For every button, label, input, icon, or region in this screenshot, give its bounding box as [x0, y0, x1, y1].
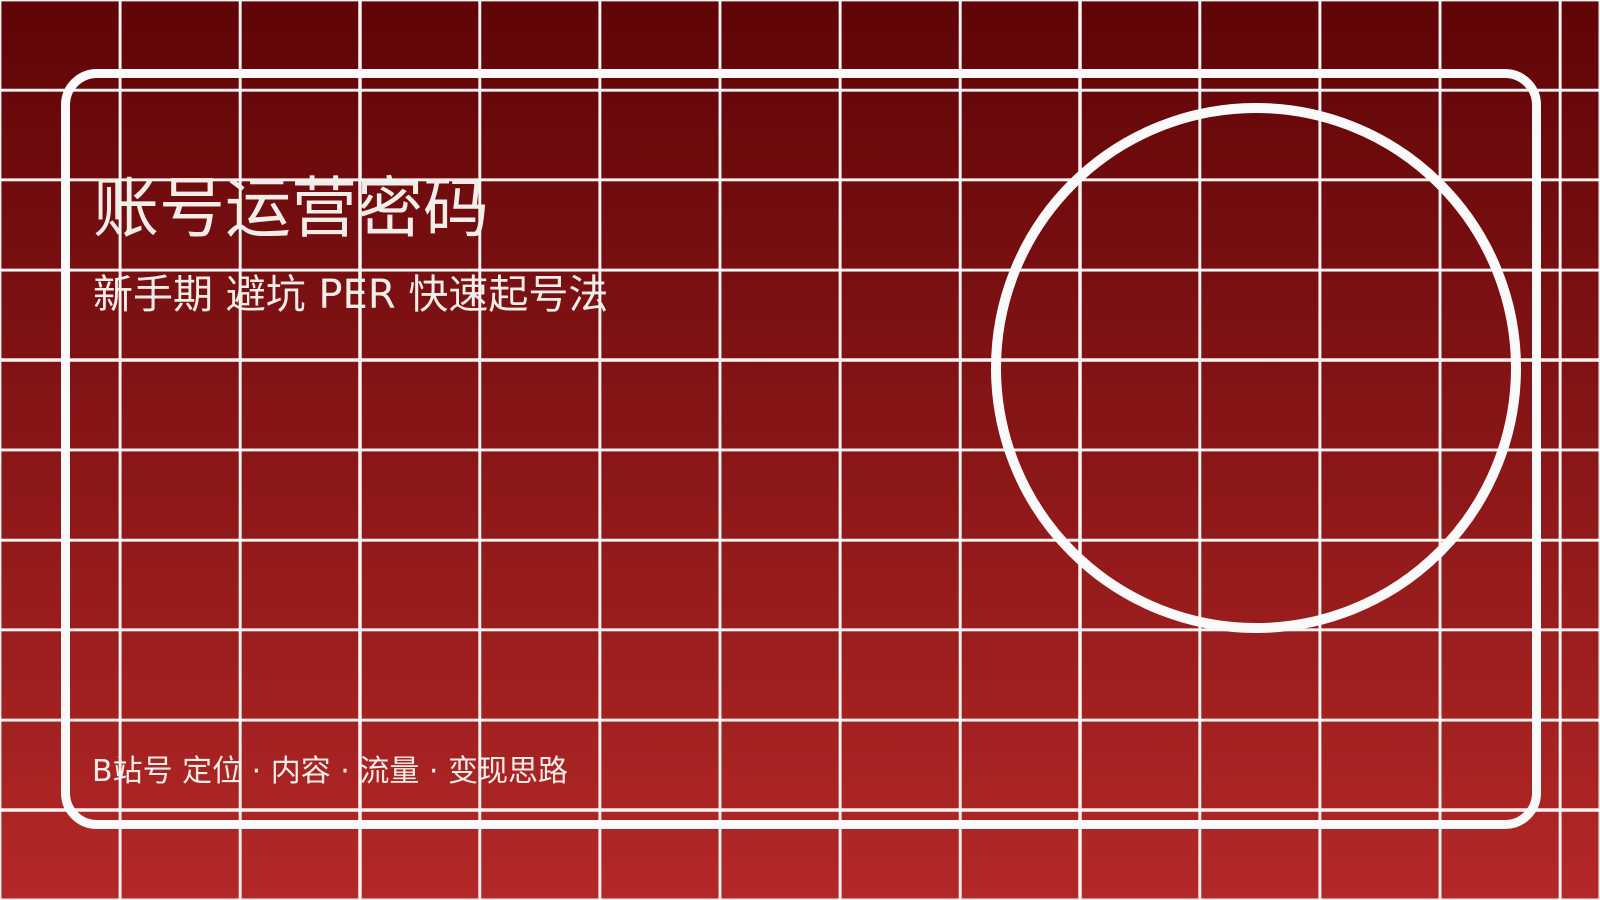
cover-footer: B站号 定位 · 内容 · 流量 · 变现思路 [92, 754, 568, 790]
cover-title: 账号运营密码 [93, 170, 489, 247]
circle-decoration [991, 103, 1521, 633]
cover-subtitle: 新手期 避坑 PER 快速起号法 [93, 272, 608, 319]
cover-canvas: 账号运营密码 新手期 避坑 PER 快速起号法 B站号 定位 · 内容 · 流量… [0, 0, 1600, 900]
